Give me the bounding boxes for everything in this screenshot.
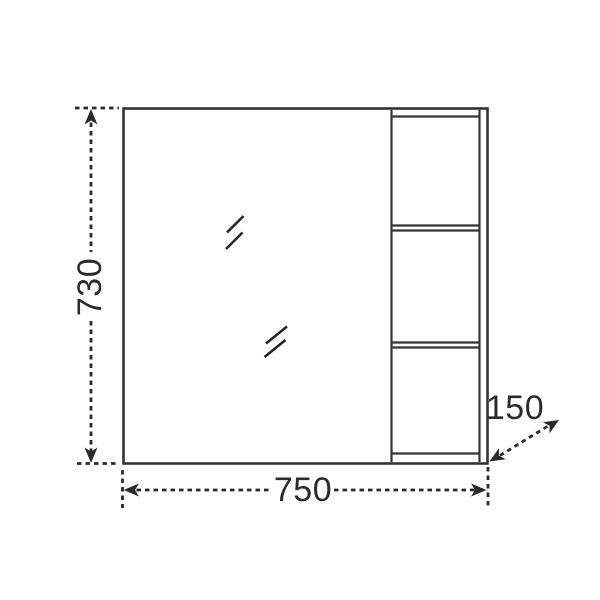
width-dimension: 750 xyxy=(123,467,489,509)
cabinet-front-view xyxy=(124,109,488,464)
shelf-divider-upper xyxy=(393,226,479,231)
depth-dimension-line xyxy=(500,426,548,456)
height-dimension: 730 xyxy=(71,108,119,464)
shelf-divider-lower xyxy=(393,343,479,348)
dimension-drawing-canvas: 730 750 150 xyxy=(0,0,600,600)
arrow-down-left-icon xyxy=(486,448,506,467)
mirror-glare-icon-upper xyxy=(226,216,244,249)
arrow-up-icon xyxy=(85,109,98,125)
arrow-up-right-icon xyxy=(543,414,563,433)
glare-stroke xyxy=(226,233,243,250)
mirror-glare-icon-lower xyxy=(265,327,288,358)
height-dimension-label: 730 xyxy=(71,258,109,316)
mirror-cabinet-dimension-diagram: 730 750 150 xyxy=(0,0,600,600)
width-dimension-label: 750 xyxy=(274,471,332,509)
cabinet-outline xyxy=(124,109,488,464)
depth-dimension: 150 xyxy=(486,389,562,467)
depth-dimension-label: 150 xyxy=(486,389,544,427)
glare-stroke xyxy=(227,216,244,233)
